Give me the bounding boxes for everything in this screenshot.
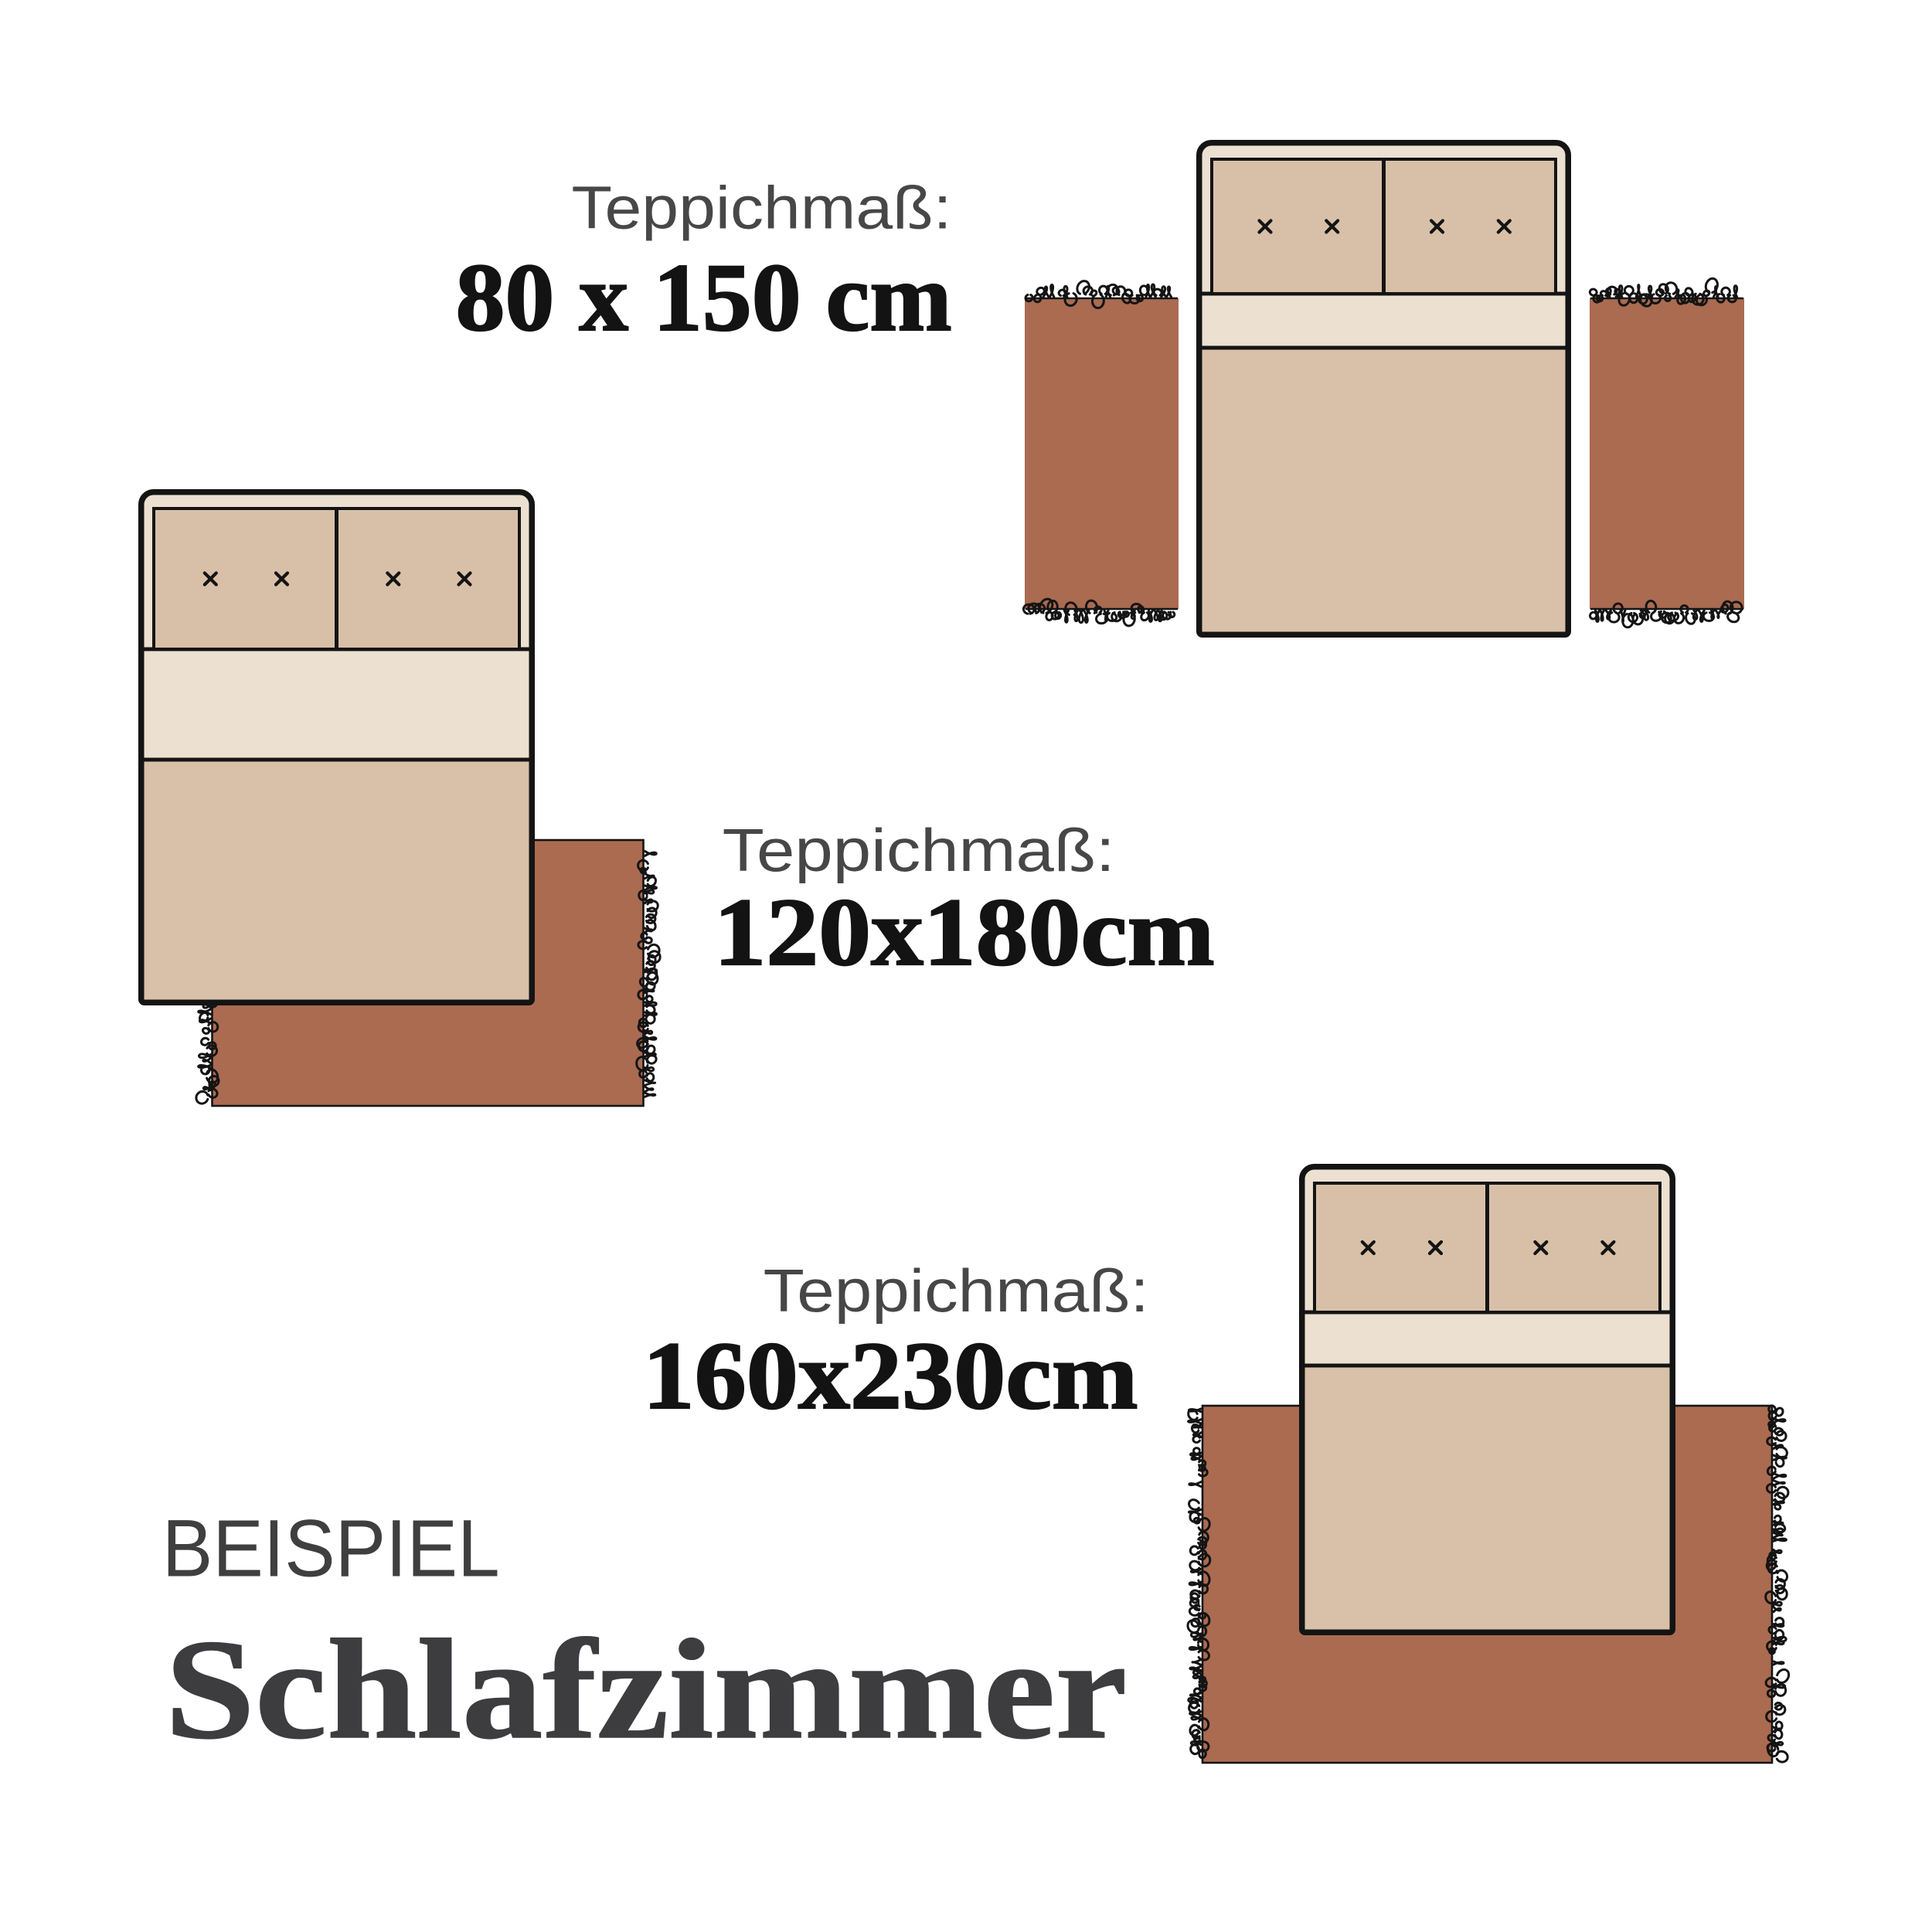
svg-text:80 x 150 cm: 80 x 150 cm [456,245,952,352]
svg-text:Teppichmaß:: Teppichmaß: [723,816,1115,884]
svg-text:120x180cm: 120x180cm [714,879,1215,986]
svg-text:Schlafzimmer: Schlafzimmer [165,1611,1127,1769]
svg-text:160x230cm: 160x230cm [643,1323,1138,1430]
svg-text:Teppichmaß:: Teppichmaß: [764,1257,1149,1325]
svg-text:Teppichmaß:: Teppichmaß: [572,173,952,241]
svg-text:BEISPIEL: BEISPIEL [162,1504,500,1594]
